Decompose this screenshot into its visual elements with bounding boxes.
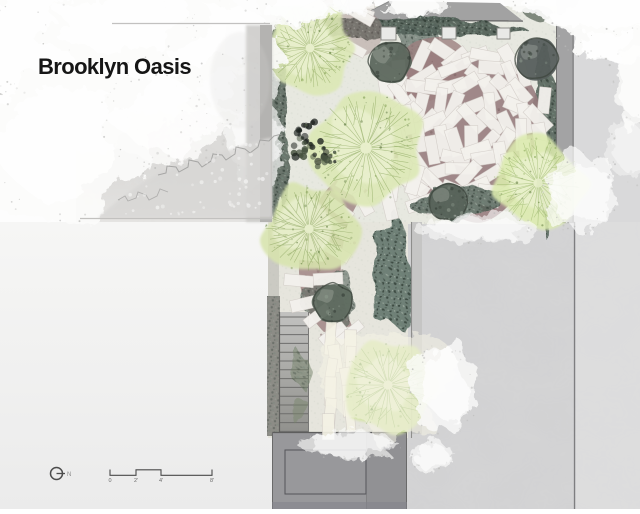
svg-text:0: 0	[108, 478, 111, 484]
svg-text:8': 8'	[210, 478, 214, 484]
svg-text:4': 4'	[159, 478, 163, 484]
svg-text:N: N	[67, 472, 71, 478]
svg-text:Brooklyn Oasis: Brooklyn Oasis	[38, 54, 191, 79]
svg-text:2': 2'	[134, 478, 138, 484]
